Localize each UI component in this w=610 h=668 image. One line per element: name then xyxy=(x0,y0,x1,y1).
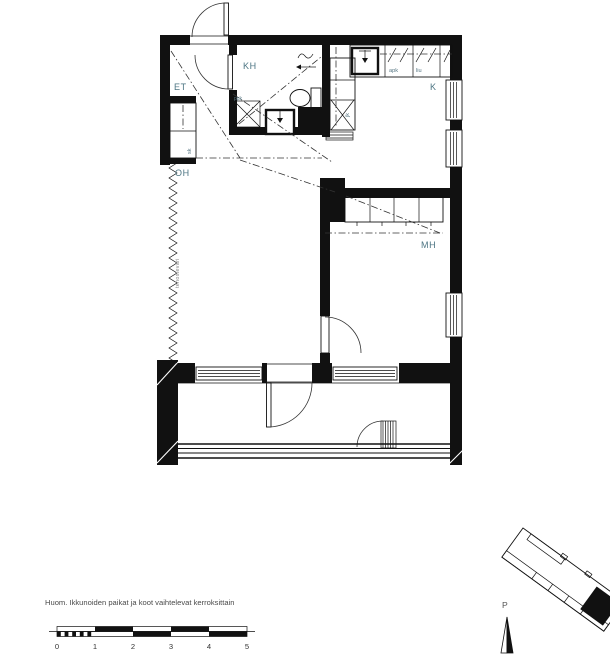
balcony-door-swing xyxy=(269,383,312,427)
scale-tick-1: 1 xyxy=(93,642,97,651)
floor-plan-canvas: ET KH K OH MH sk jk ppk apk liu tehostev… xyxy=(0,0,610,668)
window-livingroom xyxy=(196,367,262,380)
window-kitchen-1 xyxy=(446,80,462,120)
bedroom-door xyxy=(321,316,361,353)
room-label-kh: KH xyxy=(243,61,257,71)
fixture-label-liu: liu xyxy=(416,68,422,74)
balcony-wall-seg xyxy=(178,363,195,383)
right-wall xyxy=(450,337,462,465)
entrance-door xyxy=(190,3,229,44)
washbasin-icon xyxy=(266,110,294,134)
scale-tick-5: 5 xyxy=(245,642,249,651)
bathroom-door-leaf xyxy=(228,55,233,89)
scale-tick-2: 2 xyxy=(131,642,135,651)
ceiling-lines xyxy=(171,47,443,233)
bathroom-duct xyxy=(298,107,325,135)
kitchen-counter xyxy=(350,45,452,77)
kitchen-south-wall xyxy=(330,188,462,198)
note-text: Huom. Ikkunoiden paikat ja koot vaihtele… xyxy=(45,598,235,607)
scale-tick-4: 4 xyxy=(207,642,211,651)
scale-tick-3: 3 xyxy=(169,642,173,651)
closet-stub xyxy=(170,158,196,164)
balcony-wall-seg xyxy=(399,363,452,383)
bathroom-door-swing xyxy=(195,55,229,89)
washer-reservation xyxy=(234,101,260,127)
building-notch xyxy=(527,534,565,564)
scale-bar: 0 1 2 3 4 5 xyxy=(49,627,255,652)
scale-bar-subdivisions xyxy=(57,632,91,637)
window-kitchen-2 xyxy=(446,130,462,167)
screen-door-swing xyxy=(357,421,383,447)
accent-wall-label: tehosteväri xyxy=(175,258,181,288)
right-wall xyxy=(450,167,462,293)
balcony-door xyxy=(267,364,313,427)
closet-stub xyxy=(170,96,196,103)
balcony-wall-seg xyxy=(262,363,267,383)
window-bedroom-south xyxy=(333,367,397,380)
site-plan: P xyxy=(501,526,610,653)
livingroom-bedroom-wall xyxy=(320,178,330,316)
left-wall-upper xyxy=(160,35,170,165)
top-wall-right xyxy=(228,35,460,45)
room-label-mh: MH xyxy=(421,240,436,250)
fixture-label-jk: jk xyxy=(345,113,351,118)
building-balcony-strip xyxy=(502,551,609,632)
balcony-wall-seg xyxy=(312,363,332,383)
fixture-label-ppk: ppk xyxy=(234,96,243,102)
wardrobe-side-wall xyxy=(330,196,345,222)
entrance-door-leaf xyxy=(224,3,229,35)
scale-tick-0: 0 xyxy=(55,642,59,651)
building-footprint xyxy=(502,526,610,632)
apartment-location-marker xyxy=(580,586,610,625)
balcony-door-leaf xyxy=(267,383,272,427)
threshold-hatch xyxy=(326,132,353,140)
room-label-et: ET xyxy=(174,82,187,92)
window-bedroom-east xyxy=(446,293,462,337)
fixture-label-apk: apk xyxy=(389,68,398,74)
north-arrow-icon xyxy=(501,617,513,653)
right-wall xyxy=(450,120,462,130)
bathroom-door xyxy=(195,55,233,89)
balcony-railing xyxy=(178,444,451,458)
bedroom-door-swing xyxy=(325,317,361,353)
room-label-oh: OH xyxy=(175,168,190,178)
shower-icon xyxy=(296,54,316,70)
entrance-door-swing xyxy=(192,3,226,37)
exterior-walls xyxy=(157,35,464,465)
interior-walls xyxy=(170,45,462,365)
bedroom-door-leaf xyxy=(321,316,329,353)
cabinet-swing-marks xyxy=(388,48,450,62)
fixture-label-sk: sk xyxy=(187,148,193,154)
wardrobes-bedroom xyxy=(345,196,443,226)
balcony-left-wall xyxy=(157,360,178,465)
room-label-k: K xyxy=(430,82,437,92)
toilet-icon xyxy=(290,88,321,108)
bathroom-east-wall xyxy=(322,45,330,137)
livingroom-bedroom-wall xyxy=(320,353,330,365)
north-label: P xyxy=(502,600,508,610)
bathroom-west-wall xyxy=(229,45,237,55)
